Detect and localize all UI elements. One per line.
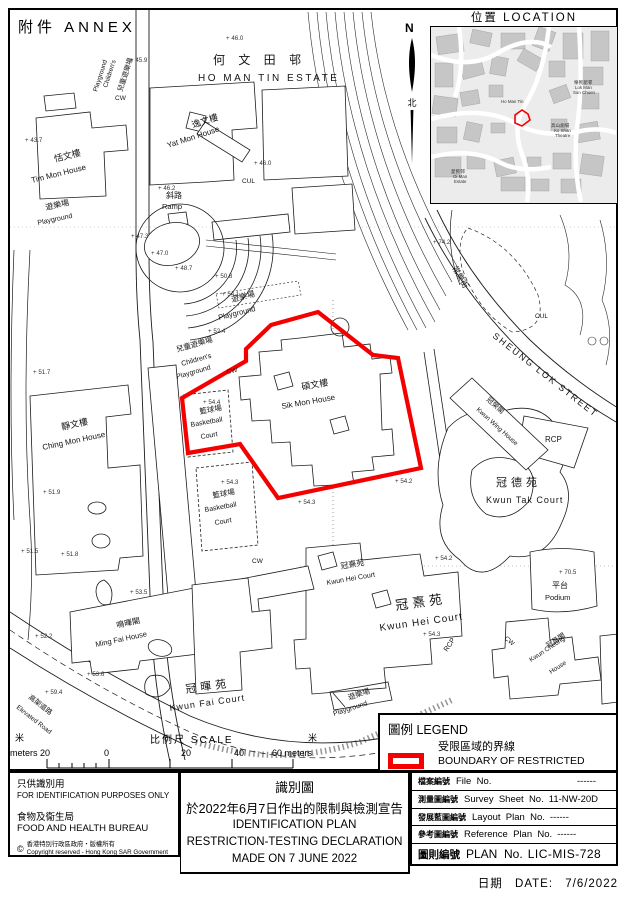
restricted-area-swatch — [388, 753, 424, 769]
map-label: 冠德苑 — [496, 475, 541, 489]
location-inset-map: 樂民新邨Lok ManSun ChuenHo Man Tin高山劇場Ko Sha… — [430, 26, 618, 204]
spot-height: + 54.2 — [395, 478, 413, 485]
note-en: FOR IDENTIFICATION PURPOSES ONLY — [17, 791, 171, 801]
date-value: 7/6/2022 — [565, 878, 618, 890]
spot-height: + 52.4 — [208, 328, 226, 335]
legend-title: 圖例 LEGEND — [388, 719, 608, 738]
plan-title-en-1: IDENTIFICATION PLAN — [233, 817, 357, 834]
spot-height: + 54.2 — [435, 555, 453, 562]
copyright-zh: 香港特別行政區政府‧版權所有 — [27, 841, 168, 850]
info-label-zh: 檔案編號 — [418, 776, 450, 787]
info-table: 檔案編號File No.------測量圖編號Survey Sheet No.1… — [410, 771, 618, 866]
info-value: 11-NW-20D — [549, 794, 598, 805]
spot-height: + 54.3 — [298, 499, 316, 506]
info-label-en: Layout Plan No. — [472, 812, 545, 823]
map-label: Kwun Fai Court — [169, 692, 246, 712]
inset-block — [501, 177, 525, 191]
scale-60: 60 meters — [272, 748, 313, 758]
map-label: Basketball — [204, 501, 237, 514]
spot-height: + 46.0 — [226, 35, 244, 42]
map-label: Kwun Tak Court — [486, 495, 563, 505]
spot-height: + 59.4 — [45, 689, 63, 696]
inset-block — [491, 123, 505, 133]
spot-height: + 54.3 — [221, 479, 239, 486]
identification-plan-page: N 北 米 meters 20 0 比例尺 SCALE 20 40 60 met… — [0, 0, 628, 897]
inset-block — [435, 63, 453, 87]
info-label-zh: 測量圖編號 — [418, 794, 458, 805]
info-value: ------ — [577, 776, 610, 787]
inset-block — [549, 61, 565, 77]
bureau-en: FOOD AND HEALTH BUREAU — [17, 823, 171, 834]
map-label: 平台 — [552, 580, 568, 590]
spot-height: + 46.2 — [158, 185, 176, 192]
info-value: ------ — [550, 812, 569, 823]
north-n-label: N — [405, 21, 414, 35]
location-inset: 位置 LOCATION 樂民新邨Lok ManSun ChuenHo Man T… — [430, 9, 618, 204]
location-inset-svg: 樂民新邨Lok ManSun ChuenHo Man Tin高山劇場Ko Sha… — [431, 27, 616, 202]
spot-height: + 47.3 — [131, 233, 149, 240]
map-label: RCP — [545, 435, 562, 444]
spot-height: + 45.9 — [130, 57, 148, 64]
inset-block — [553, 153, 571, 169]
scale-zero: 0 — [104, 748, 109, 758]
scale-20: 20 — [181, 748, 191, 758]
map-label: CW — [115, 95, 127, 102]
date-label-zh: 日期 — [478, 878, 503, 890]
info-label-zh: 圖則編號 — [418, 847, 460, 862]
annex-title: 附件 ANNEX — [18, 16, 136, 37]
map-label: Podium — [545, 593, 570, 602]
scale-40: 40 — [234, 748, 244, 758]
inset-block — [490, 56, 509, 77]
map-label: Ramp — [162, 202, 182, 211]
info-label-en: Reference Plan No. — [464, 829, 552, 840]
map-label: Court — [200, 431, 218, 441]
map-label: Playground — [217, 304, 256, 322]
spot-height: + 47.0 — [151, 250, 169, 257]
inset-block — [463, 122, 482, 143]
plan-title-en-3: MADE ON 7 JUNE 2022 — [232, 851, 357, 868]
inset-label: Estate — [454, 179, 467, 184]
copyright-icon: © — [17, 844, 24, 854]
map-label: Playground — [176, 364, 212, 381]
spot-height: + 43.7 — [25, 137, 43, 144]
spot-height: + 54.3 — [423, 631, 441, 638]
info-label-en: PLAN No. — [466, 847, 523, 861]
date-line: 日期 DATE: 7/6/2022 — [470, 875, 618, 891]
spot-height: + 51.9 — [43, 489, 61, 496]
plan-title-panel: 識別圖 於2022年6月7日作出的限制與檢測宣告 IDENTIFICATION … — [180, 771, 410, 874]
scale-title: 比例尺 SCALE — [150, 733, 234, 746]
date-label-en: DATE: — [515, 878, 553, 890]
scale-unit-right: 米 — [308, 732, 317, 743]
info-label-zh: 發展藍圖編號 — [418, 812, 466, 823]
info-value: ------ — [557, 829, 576, 840]
info-table-row: 發展藍圖編號Layout Plan No.------ — [412, 809, 616, 827]
note-zh: 只供識別用 — [17, 779, 171, 791]
plan-title-en-2: RESTRICTION-TESTING DECLARATION — [187, 834, 403, 851]
inset-block — [531, 179, 549, 191]
map-label: Playground — [37, 213, 73, 227]
map-label: SHEUNG LOK STREET — [491, 331, 600, 420]
spot-height: + 50.8 — [215, 273, 233, 280]
inset-label: Ho Man Tin — [501, 99, 524, 104]
spot-height: + 53.6 — [87, 671, 105, 678]
spot-height: + 74.2 — [433, 239, 451, 246]
map-label: RCP — [443, 637, 457, 653]
info-table-row: 圖則編號PLAN No.LIC-MIS-728 — [412, 844, 616, 864]
spot-height: + 54.1 — [222, 291, 240, 298]
info-value: LIC-MIS-728 — [528, 847, 602, 861]
info-label-en: File No. — [456, 776, 491, 787]
plan-title-zh: 識別圖 — [275, 777, 314, 796]
spot-height: + 51.7 — [33, 369, 51, 376]
inset-block — [460, 90, 480, 107]
map-label: 籃球場 — [212, 486, 236, 500]
map-label: 常樂街 — [450, 264, 471, 290]
north-arrow: N 北 — [405, 21, 417, 164]
info-table-row: 測量圖編號Survey Sheet No.11-NW-20D — [412, 791, 616, 809]
inset-block — [580, 154, 605, 177]
spot-height: + 51.8 — [61, 551, 79, 558]
legend-panel: 圖例 LEGEND 受限區域的界線 BOUNDARY OF RESTRICTED… — [378, 713, 618, 772]
info-table-row: 檔案編號File No.------ — [412, 773, 616, 791]
spot-height: + 53.5 — [130, 589, 148, 596]
spot-height: + 52.2 — [35, 633, 53, 640]
inset-block — [489, 85, 503, 97]
map-label: 兒童遊樂場 — [175, 334, 214, 354]
spot-height: + 48.7 — [175, 265, 193, 272]
spot-height: + 54.4 — [203, 399, 221, 406]
inset-block — [591, 31, 609, 61]
copyright-en: Copyright reserved - Hong Kong SAR Gover… — [27, 849, 168, 858]
spot-height: + 51.5 — [21, 548, 39, 555]
spot-height: + 70.5 — [559, 569, 577, 576]
north-zh-label: 北 — [407, 98, 416, 108]
bureau-zh: 食物及衞生局 — [17, 809, 171, 823]
map-label: CUL — [535, 313, 548, 320]
inset-block — [437, 127, 457, 143]
info-table-row: 參考圖編號Reference Plan No.------ — [412, 826, 616, 844]
spot-height: + 46.0 — [254, 160, 272, 167]
map-label: 何 文 田 邨 — [213, 52, 306, 67]
info-label-en: Survey Sheet No. — [464, 794, 544, 805]
map-label: Basketball — [190, 416, 223, 429]
plan-subtitle-zh: 於2022年6月7日作出的限制與檢測宣告 — [186, 798, 403, 817]
map-label: CW — [252, 558, 264, 565]
map-label: 遊樂場 — [44, 197, 70, 212]
scale-meters-left: meters 20 — [10, 748, 50, 758]
inset-label: Theatre — [555, 133, 571, 138]
map-label: CUL — [242, 178, 255, 185]
map-label: Playground — [332, 700, 368, 718]
location-inset-title: 位置 LOCATION — [430, 9, 618, 25]
inset-label: Sun Chuen — [573, 90, 596, 95]
legend-item-zh: 受限區域的界線 — [438, 741, 608, 755]
scale-unit-left: 米 — [15, 732, 24, 743]
info-label-zh: 參考圖編號 — [418, 829, 458, 840]
scale-bar: 米 meters 20 0 比例尺 SCALE 20 40 60 meters … — [10, 732, 317, 768]
identification-note-panel: 只供識別用 FOR IDENTIFICATION PURPOSES ONLY 食… — [8, 771, 180, 857]
map-label: Court — [214, 517, 232, 527]
map-label: HO MAN TIN ESTATE — [198, 73, 339, 84]
